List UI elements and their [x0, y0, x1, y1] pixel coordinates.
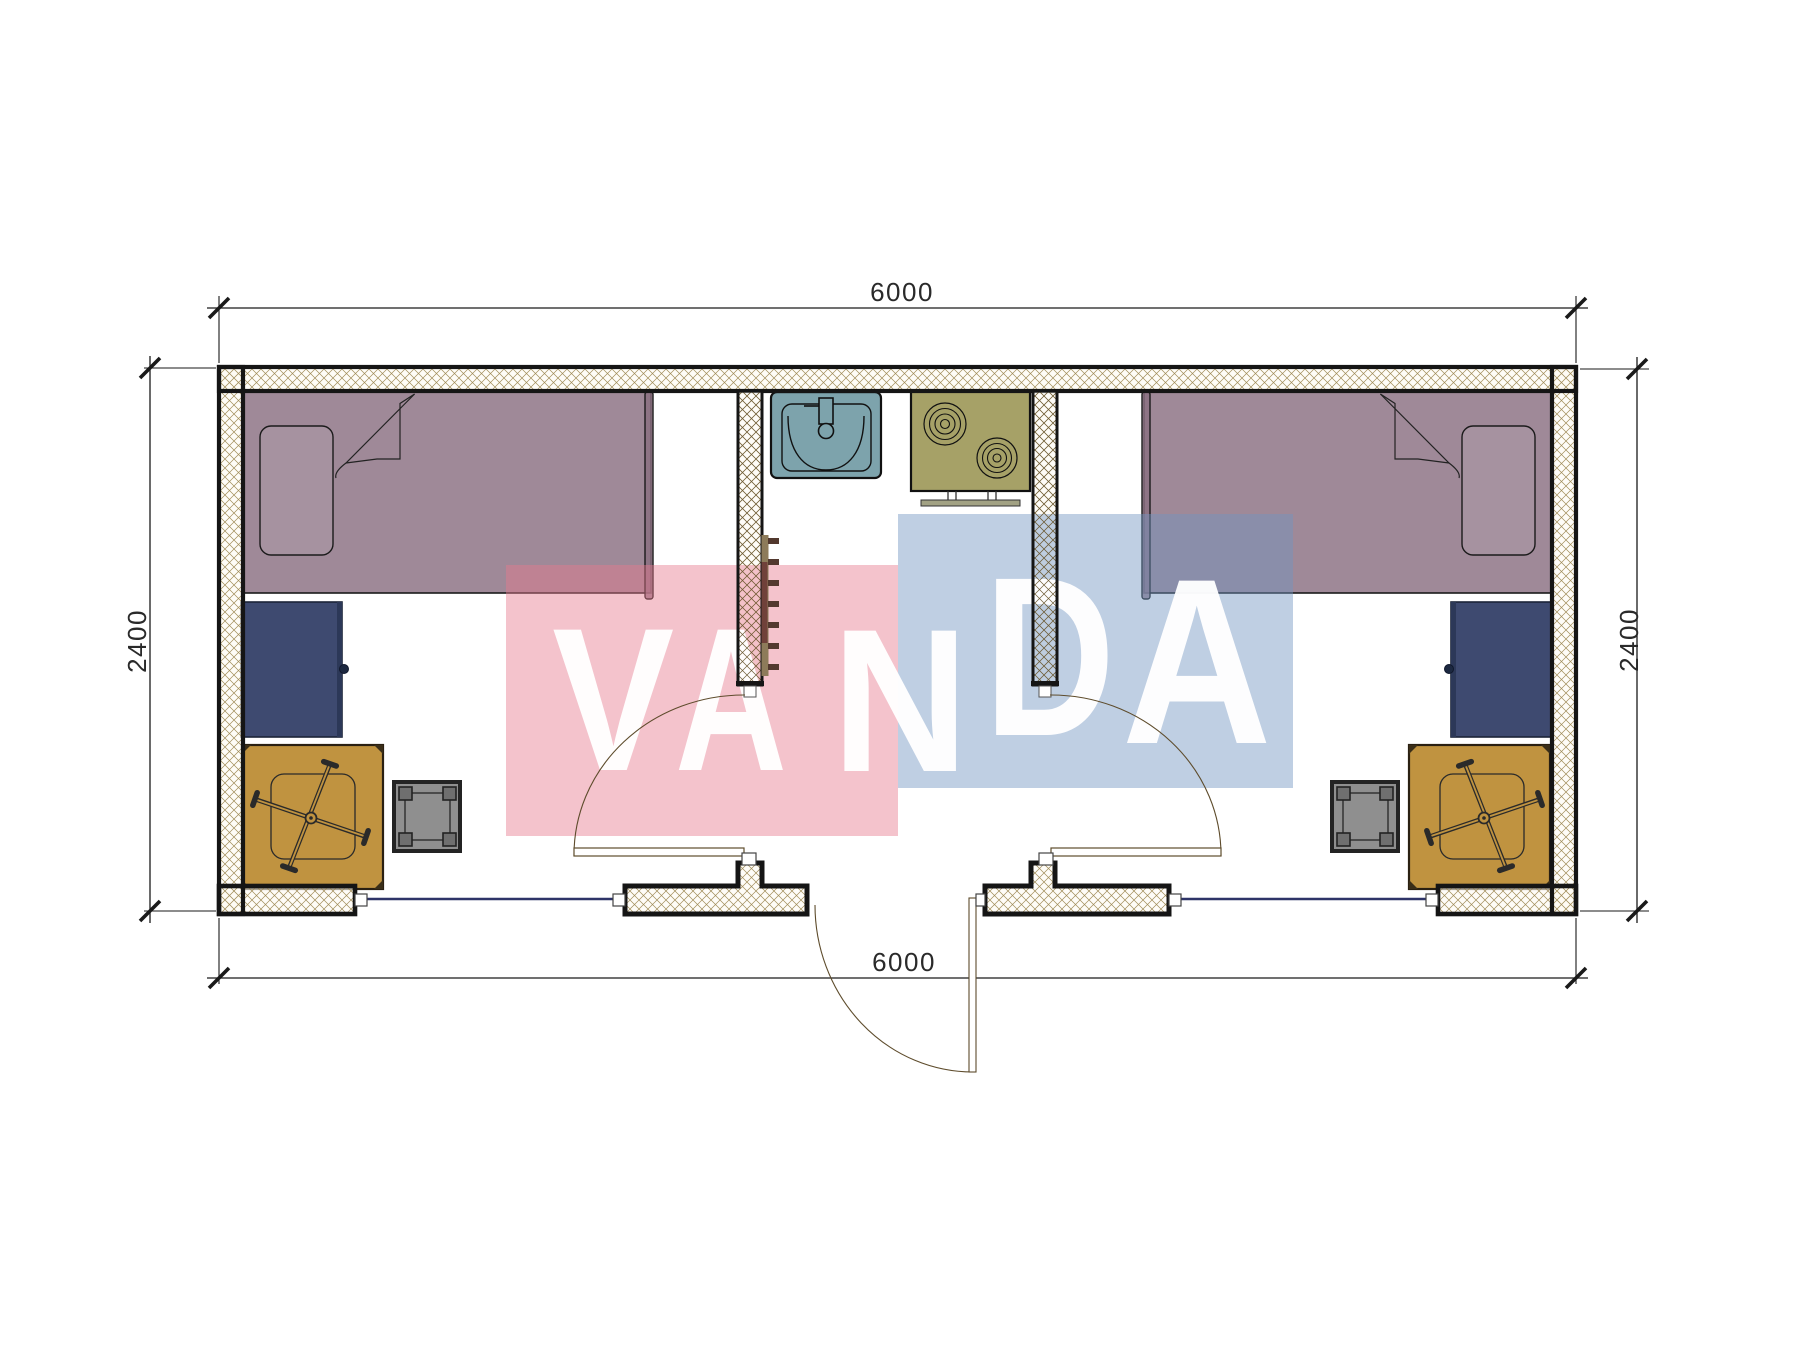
svg-text:A: A — [1122, 531, 1272, 794]
svg-text:A: A — [675, 586, 787, 813]
svg-text:6000: 6000 — [872, 947, 936, 977]
svg-text:N: N — [832, 587, 969, 815]
svg-text:2400: 2400 — [1614, 608, 1644, 672]
svg-text:2400: 2400 — [122, 609, 152, 673]
svg-text:6000: 6000 — [870, 277, 934, 307]
svg-text:V: V — [552, 587, 674, 814]
